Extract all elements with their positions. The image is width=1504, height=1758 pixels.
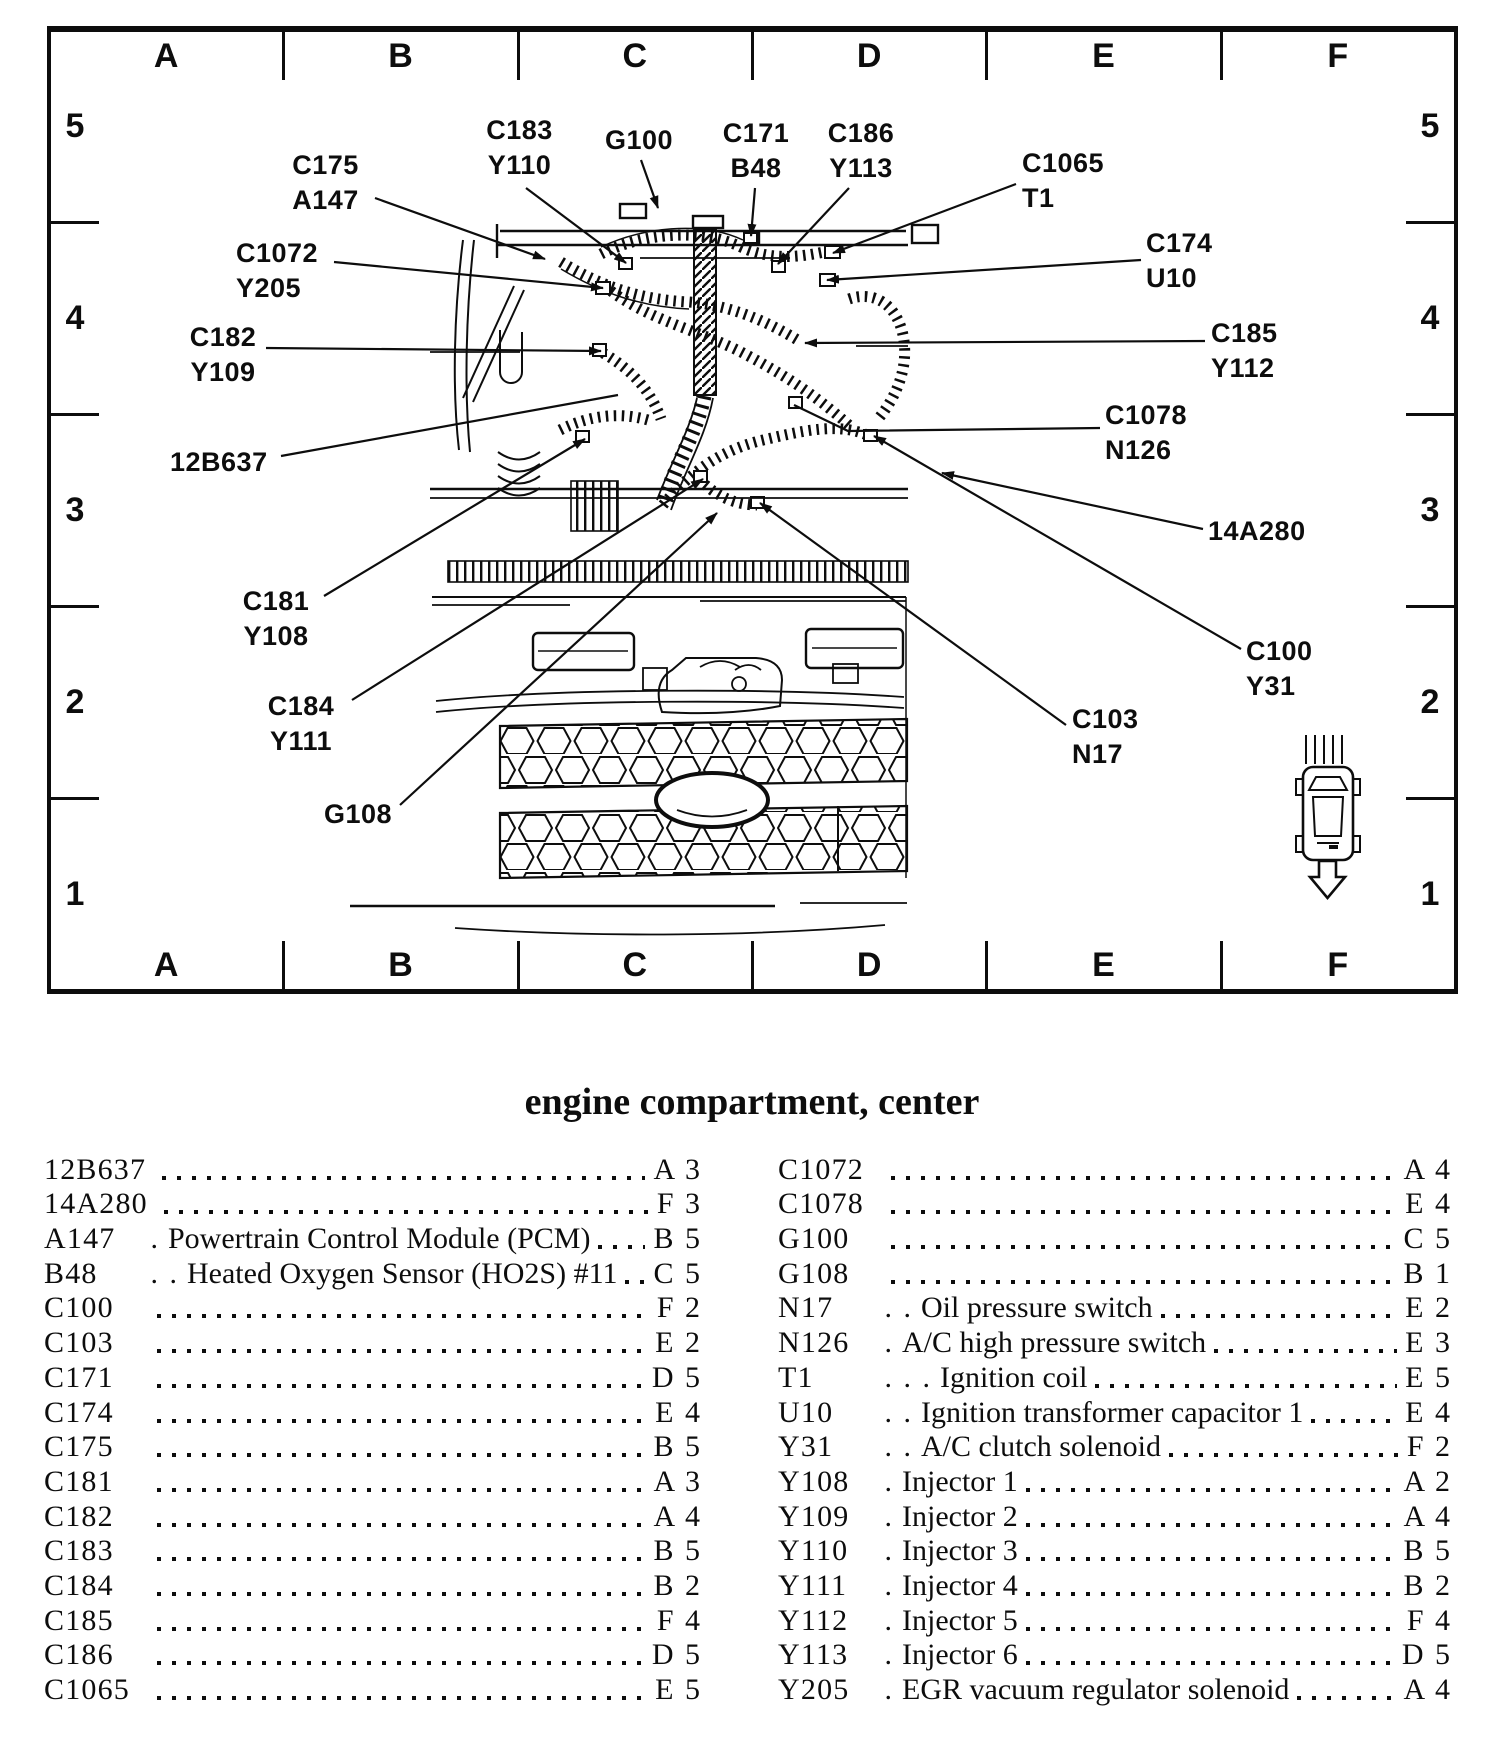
dotted-leader <box>157 1384 644 1388</box>
grid-row-number: 1 <box>51 800 99 989</box>
grid-rows-left: 54321 <box>51 32 99 989</box>
connector-code: Y110 <box>778 1534 875 1568</box>
dotted-leader <box>157 1523 645 1527</box>
connector-code: B48 <box>44 1257 141 1291</box>
index-row: C1078E 4 <box>778 1187 1452 1222</box>
index-row: Y109 .Injector 2A 4 <box>778 1499 1452 1534</box>
index-row: C174E 4 <box>44 1395 702 1430</box>
index-row: Y113 .Injector 6D 5 <box>778 1638 1452 1673</box>
index-row: C184B 2 <box>44 1568 702 1603</box>
grid-reference: E 4 <box>655 1396 702 1430</box>
grid-reference: F 3 <box>657 1187 702 1221</box>
grid-row-number: 4 <box>51 224 99 416</box>
index-row: N126 .A/C high pressure switchE 3 <box>778 1325 1452 1360</box>
callout-label: C184 Y111 <box>263 689 339 759</box>
callout-label: C181 Y108 <box>238 584 314 654</box>
connector-code: U10 <box>778 1396 875 1430</box>
dotted-leader <box>157 1453 645 1457</box>
connector-code: Y112 <box>778 1604 875 1638</box>
dotted-leader <box>891 1176 1395 1180</box>
callout-label: 12B637 <box>170 445 275 480</box>
connector-code: C1072 <box>778 1153 875 1187</box>
dotted-leader <box>157 1419 647 1423</box>
grid-reference: B 2 <box>1403 1569 1452 1603</box>
connector-code: T1 <box>778 1361 875 1395</box>
connector-description: Oil pressure switch <box>913 1291 1153 1325</box>
connector-description: Injector 3 <box>894 1534 1018 1568</box>
connector-code: C103 <box>44 1326 141 1360</box>
connector-code: A147 <box>44 1222 141 1256</box>
connector-description: Injector 1 <box>894 1465 1018 1499</box>
grid-letter: C <box>520 941 754 989</box>
grid-reference: F 2 <box>657 1291 702 1325</box>
grid-reference: E 4 <box>1405 1396 1452 1430</box>
dotted-leader <box>1026 1627 1399 1631</box>
index-row: T1 . . .Ignition coilE 5 <box>778 1360 1452 1395</box>
connector-code: C183 <box>44 1534 141 1568</box>
callout-label: C103 N17 <box>1072 702 1162 772</box>
grid-letters-bottom: ABCDEF <box>51 941 1454 989</box>
grid-reference: D 5 <box>652 1361 702 1395</box>
connector-code: C171 <box>44 1361 141 1395</box>
connector-code: G108 <box>778 1257 875 1291</box>
index-row: Y31 . .A/C clutch solenoidF 2 <box>778 1430 1452 1465</box>
index-row: C1065E 5 <box>44 1672 702 1707</box>
dotted-leader <box>891 1210 1397 1214</box>
index-row: C1072A 4 <box>778 1152 1452 1187</box>
callout-label: 14A280 <box>1208 514 1323 549</box>
dotted-leader <box>1169 1453 1399 1457</box>
index-row: A147 .Powertrain Control Module (PCM)B 5 <box>44 1221 702 1256</box>
dotted-leader <box>1095 1384 1397 1388</box>
lead-dots: . . . <box>875 1361 932 1395</box>
index-row: U10 . .Ignition transformer capacitor 1E… <box>778 1395 1452 1430</box>
lead-dots: . <box>875 1604 894 1638</box>
index-row: 14A280F 3 <box>44 1187 702 1222</box>
index-row: C100F 2 <box>44 1291 702 1326</box>
connector-code: Y108 <box>778 1465 875 1499</box>
grid-reference: A 4 <box>1403 1500 1452 1534</box>
connector-code: C174 <box>44 1396 141 1430</box>
connector-code: N126 <box>778 1326 875 1360</box>
dotted-leader <box>1297 1696 1395 1700</box>
connector-description: Injector 5 <box>894 1604 1018 1638</box>
connector-code: Y205 <box>778 1673 875 1707</box>
grid-reference: B 5 <box>653 1222 702 1256</box>
grid-row-number: 2 <box>1406 608 1454 800</box>
grid-reference: A 4 <box>653 1500 702 1534</box>
grid-reference: B 1 <box>1403 1257 1452 1291</box>
dotted-leader <box>157 1661 644 1665</box>
connector-code: Y111 <box>778 1569 875 1603</box>
connector-description: Injector 2 <box>894 1500 1018 1534</box>
connector-code: C100 <box>44 1291 141 1325</box>
dotted-leader <box>157 1627 649 1631</box>
connector-code: C184 <box>44 1569 141 1603</box>
index-row: C103E 2 <box>44 1325 702 1360</box>
index-row: Y108 .Injector 1A 2 <box>778 1464 1452 1499</box>
dotted-leader <box>891 1245 1395 1249</box>
grid-row-number: 4 <box>1406 224 1454 416</box>
lead-dots: . <box>875 1500 894 1534</box>
grid-row-number: 5 <box>1406 32 1454 224</box>
lead-dots: . . <box>875 1291 913 1325</box>
index-row: C171D 5 <box>44 1360 702 1395</box>
dotted-leader <box>1026 1661 1394 1665</box>
diagram-title: engine compartment, center <box>0 1080 1504 1124</box>
connector-code: 14A280 <box>44 1187 148 1221</box>
grid-reference: A 4 <box>1403 1153 1452 1187</box>
lead-dots: . <box>875 1638 894 1672</box>
index-row: C186D 5 <box>44 1638 702 1673</box>
scanned-manual-page: { "title": "engine compartment, center",… <box>0 0 1504 1758</box>
connector-code: C186 <box>44 1638 141 1672</box>
dotted-leader <box>157 1557 645 1561</box>
grid-reference: D 5 <box>1402 1638 1452 1672</box>
connector-description: Powertrain Control Module (PCM) <box>160 1222 590 1256</box>
lead-dots: . <box>875 1465 894 1499</box>
callout-label: C100 Y31 <box>1246 634 1336 704</box>
index-row: C181A 3 <box>44 1464 702 1499</box>
index-row: C182A 4 <box>44 1499 702 1534</box>
grid-reference: C 5 <box>653 1257 702 1291</box>
connector-code: Y31 <box>778 1430 875 1464</box>
connector-description: Ignition transformer capacitor 1 <box>913 1396 1303 1430</box>
grid-reference: E 5 <box>1405 1361 1452 1395</box>
index-column-left: 12B637A 3 14A280F 3 A147 .Powertrain Con… <box>44 1152 702 1707</box>
grid-letter: C <box>520 32 754 80</box>
grid-reference: F 4 <box>657 1604 702 1638</box>
grid-row-number: 5 <box>51 32 99 224</box>
grid-reference: F 4 <box>1407 1604 1452 1638</box>
callout-label: C1065 T1 <box>1022 146 1132 216</box>
grid-letter: D <box>754 941 988 989</box>
grid-reference: A 4 <box>1403 1673 1452 1707</box>
grid-letter: B <box>285 941 519 989</box>
lead-dots: . . <box>141 1257 179 1291</box>
callout-label: G100 <box>599 123 679 158</box>
grid-reference: A 2 <box>1403 1465 1452 1499</box>
dotted-leader <box>157 1696 647 1700</box>
connector-code: C1065 <box>44 1673 141 1707</box>
grid-row-number: 3 <box>51 416 99 608</box>
index-row: G108B 1 <box>778 1256 1452 1291</box>
lead-dots: . <box>875 1326 894 1360</box>
callout-label: G108 <box>320 797 396 832</box>
lead-dots: . <box>875 1673 894 1707</box>
grid-reference: E 3 <box>1405 1326 1452 1360</box>
connector-description: Heated Oxygen Sensor (HO2S) #11 <box>179 1257 617 1291</box>
index-row: B48 . .Heated Oxygen Sensor (HO2S) #11C … <box>44 1256 702 1291</box>
index-column-right: C1072A 4 C1078E 4 G100C 5 G108B 1 N17 . … <box>778 1152 1452 1707</box>
connector-code: N17 <box>778 1291 875 1325</box>
callout-label: C183 Y110 <box>472 113 567 183</box>
dotted-leader <box>164 1210 649 1214</box>
callout-label: C182 Y109 <box>183 320 263 390</box>
callout-label: C174 U10 <box>1146 226 1246 296</box>
grid-reference: B 5 <box>1403 1534 1452 1568</box>
grid-reference: E 2 <box>655 1326 702 1360</box>
connector-code: C181 <box>44 1465 141 1499</box>
grid-reference: A 3 <box>653 1153 702 1187</box>
dotted-leader <box>1026 1523 1396 1527</box>
index-row: Y112 .Injector 5F 4 <box>778 1603 1452 1638</box>
index-row: G100C 5 <box>778 1221 1452 1256</box>
dotted-leader <box>157 1314 649 1318</box>
lead-dots: . <box>141 1222 160 1256</box>
callout-label: C185 Y112 <box>1211 316 1306 386</box>
grid-reference: B 2 <box>653 1569 702 1603</box>
connector-code: C182 <box>44 1500 141 1534</box>
grid-reference: E 2 <box>1405 1291 1452 1325</box>
dotted-leader <box>1026 1592 1396 1596</box>
dotted-leader <box>157 1592 645 1596</box>
connector-code: C185 <box>44 1604 141 1638</box>
grid-reference: F 2 <box>1407 1430 1452 1464</box>
index-row: Y110 .Injector 3B 5 <box>778 1534 1452 1569</box>
grid-row-number: 3 <box>1406 416 1454 608</box>
grid-rows-right: 54321 <box>1406 32 1454 989</box>
callout-label: C1078 N126 <box>1105 398 1215 468</box>
grid-reference: A 3 <box>653 1465 702 1499</box>
grid-reference: C 5 <box>1403 1222 1452 1256</box>
index-row: C175B 5 <box>44 1430 702 1465</box>
connector-code: G100 <box>778 1222 875 1256</box>
connector-description: A/C clutch solenoid <box>913 1430 1161 1464</box>
connector-description: Ignition coil <box>932 1361 1087 1395</box>
dotted-leader <box>1214 1349 1397 1353</box>
connector-code: C175 <box>44 1430 141 1464</box>
index-row: N17 . .Oil pressure switchE 2 <box>778 1291 1452 1326</box>
grid-row-number: 1 <box>1406 800 1454 989</box>
grid-letter: E <box>988 941 1222 989</box>
connector-code: 12B637 <box>44 1153 146 1187</box>
grid-row-number: 2 <box>51 608 99 800</box>
dotted-leader <box>1026 1557 1396 1561</box>
dotted-leader <box>891 1280 1395 1284</box>
dotted-leader <box>162 1176 645 1180</box>
callout-label: C186 Y113 <box>815 116 907 186</box>
grid-letter: D <box>754 32 988 80</box>
dotted-leader <box>157 1488 645 1492</box>
dotted-leader <box>598 1245 645 1249</box>
grid-reference: B 5 <box>653 1534 702 1568</box>
lead-dots: . . <box>875 1396 913 1430</box>
lead-dots: . <box>875 1569 894 1603</box>
index-row: C183B 5 <box>44 1534 702 1569</box>
grid-reference: D 5 <box>652 1638 702 1672</box>
connector-code: Y109 <box>778 1500 875 1534</box>
dotted-leader <box>625 1280 645 1284</box>
connector-code: Y113 <box>778 1638 875 1672</box>
lead-dots: . . <box>875 1430 913 1464</box>
grid-reference: E 4 <box>1405 1187 1452 1221</box>
callout-label: C171 B48 <box>710 116 802 186</box>
connector-description: Injector 4 <box>894 1569 1018 1603</box>
grid-reference: E 5 <box>655 1673 702 1707</box>
index-row: C185F 4 <box>44 1603 702 1638</box>
callout-label: C1072 Y205 <box>236 236 331 306</box>
grid-letters-top: ABCDEF <box>51 32 1454 80</box>
grid-letter: E <box>988 32 1222 80</box>
index-row: Y205 .EGR vacuum regulator solenoidA 4 <box>778 1672 1452 1707</box>
lead-dots: . <box>875 1534 894 1568</box>
index-row: 12B637A 3 <box>44 1152 702 1187</box>
dotted-leader <box>1161 1314 1398 1318</box>
connector-description: Injector 6 <box>894 1638 1018 1672</box>
connector-description: EGR vacuum regulator solenoid <box>894 1673 1289 1707</box>
index-row: Y111 .Injector 4B 2 <box>778 1568 1452 1603</box>
callout-label: C175 A147 <box>278 148 373 218</box>
dotted-leader <box>1311 1419 1397 1423</box>
connector-code: C1078 <box>778 1187 875 1221</box>
grid-reference: B 5 <box>653 1430 702 1464</box>
dotted-leader <box>157 1349 647 1353</box>
connector-description: A/C high pressure switch <box>894 1326 1206 1360</box>
grid-letter: B <box>285 32 519 80</box>
dotted-leader <box>1026 1488 1396 1492</box>
